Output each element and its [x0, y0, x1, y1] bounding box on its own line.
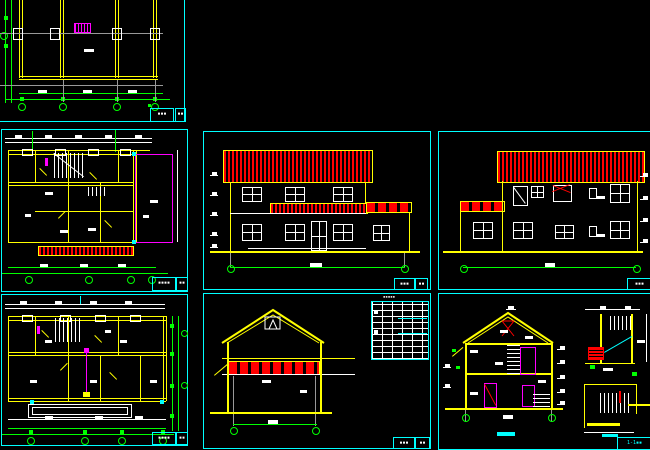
wall-line	[8, 398, 166, 399]
section-line	[86, 352, 87, 394]
wall-line	[585, 363, 635, 364]
window	[589, 188, 597, 199]
room-label-blob	[45, 192, 53, 195]
schedule-title: ▪▪▪▪▪	[383, 294, 409, 299]
stair-hatch	[55, 318, 83, 342]
schedule-divider	[398, 333, 427, 334]
room-label-blob	[30, 380, 37, 383]
roof-hatch	[497, 151, 645, 183]
axis-bubble	[181, 330, 188, 337]
level-mark	[632, 372, 637, 376]
window-symbol	[22, 315, 33, 322]
elevation-flag	[443, 367, 451, 368]
window	[242, 187, 262, 202]
elevation-flag	[557, 349, 565, 350]
dim-marker	[83, 430, 87, 434]
axis-line	[32, 131, 33, 151]
axis-bubble	[633, 265, 641, 273]
elevation-flag	[557, 404, 565, 405]
wall-line	[19, 76, 158, 77]
wall-line	[8, 355, 166, 356]
axis-line	[0, 85, 163, 86]
dim-text-blob	[135, 416, 143, 419]
elevation-text-blob	[643, 173, 648, 176]
dim-text-blob	[105, 135, 112, 138]
titleblock-label: 1-1▪▪	[617, 437, 650, 450]
dim-line	[463, 267, 636, 268]
axis-bubble	[118, 437, 126, 445]
dim-text-blob	[603, 368, 613, 371]
window-symbol	[112, 28, 122, 40]
garage-parapet-hatch	[366, 202, 412, 213]
dim-line	[584, 432, 634, 433]
dim-text-blob	[38, 90, 47, 93]
elevation-text-blob	[643, 196, 648, 199]
detail-blob	[470, 392, 478, 395]
dim-text-blob	[637, 340, 645, 343]
dim-marker	[120, 430, 124, 434]
axis-bubble	[401, 265, 409, 273]
window	[333, 224, 353, 241]
axis-bubble	[462, 414, 470, 422]
window-symbol	[22, 149, 33, 156]
titleblock-label: ▪▪▪	[394, 278, 415, 290]
elevation-text-blob	[212, 232, 217, 235]
detail-blob	[300, 390, 307, 393]
titleblock-label: ▪▪▪	[393, 437, 415, 449]
window	[531, 186, 544, 198]
elevation-text-blob	[212, 172, 217, 175]
axis-line	[0, 33, 163, 34]
elevation-text-blob	[212, 244, 217, 247]
dim-text-blob	[84, 49, 94, 52]
elevation-flag	[443, 387, 451, 388]
wall-line	[8, 150, 9, 243]
wall-line	[8, 185, 134, 186]
dim-text-blob	[75, 135, 82, 138]
wall-line	[320, 342, 322, 413]
wall-line	[8, 182, 134, 183]
elevation-text-blob	[508, 306, 514, 309]
dim-line	[11, 0, 12, 103]
titleblock-number: ▪▪	[415, 278, 428, 290]
window	[473, 222, 493, 239]
wall-line	[35, 316, 36, 355]
titleblock-label: ▪▪▪▪	[152, 277, 176, 291]
schedule-divider	[398, 318, 427, 319]
schedule-cell-mark	[374, 310, 378, 314]
ground-line	[210, 412, 332, 414]
floor-line	[230, 213, 366, 214]
wall-line	[63, 0, 64, 78]
section-label-blob	[497, 432, 515, 436]
wall-line	[227, 342, 229, 413]
dim-text-blob	[600, 306, 606, 309]
entry-symbol	[83, 392, 90, 397]
dim-line	[5, 99, 170, 100]
dim-line	[5, 308, 165, 309]
window-symbol	[130, 315, 141, 322]
dim-marker	[170, 414, 174, 418]
wall-line	[166, 316, 167, 401]
elevation-text-blob	[560, 389, 565, 392]
wall-line	[584, 384, 636, 385]
dim-line	[2, 434, 174, 435]
window-symbol	[95, 315, 106, 322]
dim-line	[5, 304, 165, 305]
axis-bubble	[312, 427, 320, 435]
terrace-outline	[135, 154, 173, 243]
dim-text-blob	[128, 90, 137, 93]
wall-line	[140, 355, 141, 401]
elevation-flag	[506, 309, 516, 310]
handrail-mark	[619, 391, 621, 403]
elevation-flag	[210, 215, 218, 216]
axis-bubble	[181, 382, 188, 389]
axis-bubble	[81, 437, 89, 445]
porch-outline	[32, 407, 128, 415]
column-line	[315, 376, 316, 412]
elevation-flag	[640, 221, 648, 222]
window-symbol	[150, 28, 160, 40]
stair-hatch	[88, 187, 108, 196]
door-symbol	[37, 326, 40, 334]
dim-line	[646, 314, 647, 362]
dim-text-blob	[310, 263, 322, 267]
balcony-railing-hatch	[228, 361, 320, 375]
dim-text-blob	[135, 135, 142, 138]
axis-bubble	[230, 427, 238, 435]
window	[333, 187, 353, 202]
dim-line	[5, 142, 152, 143]
elevation-flag	[640, 242, 648, 243]
window	[513, 222, 533, 239]
axis-bubble	[460, 265, 468, 273]
wall-line	[133, 150, 134, 243]
elevation-flag	[557, 363, 565, 364]
window-symbol	[88, 149, 99, 156]
column-line	[233, 376, 234, 412]
dim-text-blob	[15, 135, 22, 138]
titleblock-number: ▪▪	[175, 108, 186, 122]
room-label-blob	[143, 215, 149, 218]
dim-text-blob	[545, 263, 555, 267]
wall-line	[636, 384, 637, 414]
cad-sheet: ▪▪▪ ▪▪ ▪▪▪▪ ▪▪	[0, 0, 650, 450]
dim-line	[8, 428, 166, 429]
axis-bubble	[27, 437, 35, 445]
level-mark	[452, 349, 456, 352]
axis-bubble	[227, 265, 235, 273]
dim-line	[8, 267, 156, 268]
axis-bubble	[59, 103, 67, 111]
roof-hatch	[223, 150, 373, 183]
wall-line	[460, 210, 461, 251]
eave-line	[222, 358, 355, 359]
door-symbol	[45, 158, 48, 166]
detail-blob	[525, 336, 533, 339]
titleblock-number: ▪▪	[415, 437, 430, 449]
window	[285, 187, 305, 202]
wall-line	[35, 150, 36, 183]
dim-text-blob	[125, 301, 132, 304]
elevation-text-blob	[643, 239, 648, 242]
window-symbol	[13, 28, 23, 40]
dim-marker	[29, 430, 33, 434]
elevation-text-blob	[560, 346, 565, 349]
wall-line	[8, 316, 9, 401]
elevation-text-blob	[643, 218, 648, 221]
axis-line	[115, 130, 116, 152]
dim-marker	[20, 97, 24, 101]
titleblock-number: ▪▪	[176, 432, 188, 445]
detail-blob	[470, 350, 478, 353]
elevation-text-blob	[445, 384, 450, 387]
stair-treads	[610, 316, 632, 330]
wall-line	[35, 211, 134, 212]
wall-line	[118, 316, 119, 355]
elevation-text-blob	[212, 212, 217, 215]
schedule-table	[371, 301, 429, 360]
dim-marker	[4, 44, 8, 48]
room-label-blob	[90, 380, 97, 383]
dim-text-blob	[83, 90, 92, 93]
titleblock-number: ▪▪	[176, 277, 188, 291]
wall-line	[584, 384, 585, 428]
detail-blob	[597, 196, 605, 199]
wall-line	[230, 182, 231, 251]
room-label-blob	[25, 214, 31, 217]
level-mark	[590, 365, 595, 369]
dim-line	[8, 419, 166, 420]
ground-line	[443, 251, 643, 253]
stair-steps	[533, 394, 550, 407]
dim-marker	[170, 384, 174, 388]
room-label-blob	[150, 200, 158, 203]
window	[610, 221, 630, 239]
dim-text-blob	[625, 306, 631, 309]
balcony-floor-line	[222, 374, 355, 375]
wall-line	[163, 316, 164, 401]
elevation-text-blob	[445, 364, 450, 367]
window	[589, 226, 597, 237]
wall-line	[118, 150, 119, 183]
elevation-flag	[210, 235, 218, 236]
elevation-text-blob	[560, 360, 565, 363]
room-label-blob	[150, 380, 157, 383]
dim-line	[19, 93, 163, 94]
axis-bubble	[25, 276, 33, 284]
elevation-flag	[640, 176, 648, 177]
detail-label-blob	[602, 434, 618, 437]
elevation-flag	[557, 378, 565, 379]
room-label-blob	[88, 228, 96, 231]
room-label-blob	[105, 330, 111, 333]
window	[242, 224, 262, 241]
wall-line	[8, 242, 136, 243]
ground-line	[210, 251, 420, 253]
dim-line	[5, 138, 152, 139]
wall-line	[60, 0, 61, 78]
dim-line	[233, 424, 317, 425]
schedule-cell-mark	[374, 330, 378, 334]
elevation-text-blob	[560, 375, 565, 378]
level-mark	[456, 366, 460, 369]
dim-line	[585, 309, 640, 310]
section-marker	[132, 240, 136, 244]
axis-bubble	[113, 103, 121, 111]
wall-line	[637, 181, 638, 251]
window-symbol	[50, 28, 60, 40]
elevation-flag	[210, 195, 218, 196]
dim-marker	[148, 104, 151, 107]
detail-blob	[500, 330, 508, 333]
dim-line	[230, 267, 405, 268]
dim-text-blob	[90, 301, 97, 304]
dim-marker	[170, 324, 174, 328]
detail-blob	[538, 380, 546, 383]
floor-line	[248, 248, 366, 249]
wall-line	[19, 79, 158, 80]
dim-marker	[170, 352, 174, 356]
section-roof-outline	[448, 303, 560, 348]
entry-door	[311, 221, 327, 251]
window	[610, 184, 630, 203]
dim-text-blob	[40, 264, 48, 267]
section-marker	[132, 152, 136, 156]
section-line	[80, 296, 81, 304]
axis-line	[155, 80, 156, 102]
landing-slab	[587, 423, 620, 426]
window-symbol	[120, 149, 131, 156]
dim-text-blob	[95, 416, 103, 419]
window	[373, 225, 390, 241]
wall-line	[502, 181, 503, 251]
wall-line	[465, 343, 467, 409]
dim-text-blob	[80, 264, 88, 267]
window	[285, 224, 305, 241]
stair-hatch-symbol	[74, 23, 91, 33]
dim-text-blob	[503, 415, 513, 419]
elevation-flag	[640, 199, 648, 200]
stair-section-hatch	[588, 347, 604, 360]
titleblock-label: ▪▪▪	[627, 278, 650, 290]
dim-marker	[4, 16, 8, 20]
room-label-blob	[120, 340, 127, 343]
stair-hatch	[507, 345, 520, 374]
landing-slab	[628, 404, 650, 406]
axis-bubble	[18, 103, 26, 111]
dim-text-blob	[20, 301, 27, 304]
window	[555, 225, 574, 239]
door-frame	[520, 347, 536, 375]
axis-bubble	[548, 414, 556, 422]
elevation-text-blob	[212, 192, 217, 195]
garage-parapet-hatch	[460, 201, 505, 212]
dim-line	[177, 150, 178, 242]
ground-line	[445, 408, 563, 410]
balcony-railing-hatch	[38, 246, 134, 256]
elevation-text-blob	[560, 401, 565, 404]
axis-line	[117, 80, 118, 102]
room-label-blob	[45, 340, 52, 343]
dim-text-blob	[268, 420, 278, 424]
room-label-blob	[60, 230, 68, 233]
wall-line	[100, 355, 101, 401]
detail-blob	[495, 362, 503, 365]
elevation-flag	[210, 247, 218, 248]
attic-truss-mark	[502, 321, 514, 336]
dim-text-blob	[55, 301, 62, 304]
dim-line	[2, 273, 168, 274]
detail-blob	[262, 380, 271, 383]
wall-line	[551, 343, 553, 409]
axis-bubble	[85, 276, 93, 284]
section-marker	[160, 400, 164, 404]
axis-line	[63, 80, 64, 102]
dim-text-blob	[118, 264, 126, 267]
elevation-flag	[557, 392, 565, 393]
wall-line	[409, 211, 410, 251]
detail-blob	[597, 234, 605, 237]
elevation-flag	[210, 175, 218, 176]
titleblock-label: ▪▪▪	[150, 108, 174, 122]
wall-line	[365, 182, 366, 203]
stair-treads	[600, 393, 630, 413]
section-marker	[84, 348, 89, 353]
dim-text-blob	[45, 135, 52, 138]
axis-bubble	[127, 276, 135, 284]
dim-text-blob	[45, 416, 53, 419]
dim-line	[178, 316, 179, 431]
titleblock-label: ▪▪▪▪	[152, 432, 176, 445]
